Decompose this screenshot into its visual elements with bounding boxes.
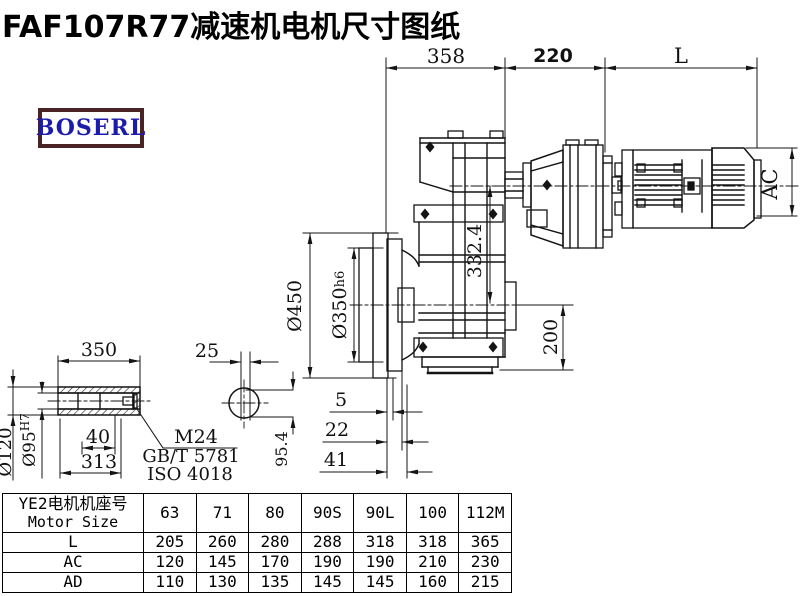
dim-120-label: Ø120: [0, 427, 16, 476]
cell: 170: [249, 553, 302, 573]
row-label: AD: [3, 573, 144, 593]
cell: 190: [354, 553, 407, 573]
dimension-arrow: [352, 248, 357, 259]
drawing-shape: [490, 131, 503, 138]
cell: 230: [459, 553, 512, 573]
standard-iso-label: ISO 4018: [147, 464, 233, 485]
table-header-motor-size: YE2电机机座号Motor Size: [3, 494, 144, 533]
dimension-arrow: [488, 292, 493, 303]
drawing-shape: [585, 140, 598, 145]
dimension-arrow: [790, 148, 795, 159]
dim-L-label: L: [674, 44, 688, 68]
dimension-arrow: [11, 415, 16, 426]
row-label: AC: [3, 553, 144, 573]
column-header: 80: [249, 494, 302, 533]
cell: 280: [249, 533, 302, 553]
dim-332-label: 332.4: [464, 224, 486, 278]
drawing-shape: [505, 172, 523, 198]
dimension-arrow: [393, 410, 404, 415]
column-header: 71: [196, 494, 249, 533]
drawing-shape: [58, 387, 140, 393]
dimension-arrow: [561, 359, 566, 370]
bolt-diamond-icon: [543, 180, 552, 191]
bolt-diamond-icon: [421, 209, 430, 220]
dim-40-label: 40: [86, 426, 110, 448]
dim-350h6-label: Ø350h6: [329, 271, 351, 340]
cell: 205: [144, 533, 197, 553]
dimension-arrow: [230, 360, 241, 365]
bolt-diamond-icon: [419, 342, 428, 353]
drawing-shape: [527, 210, 547, 227]
drawing-contour: [402, 250, 419, 266]
cell: 210: [406, 553, 459, 573]
drawing-line: [420, 182, 453, 192]
drawing-shape: [615, 163, 622, 176]
dim-358-label: 358: [427, 44, 465, 68]
drawing-shape: [615, 202, 622, 215]
cell: 110: [144, 573, 197, 593]
drawing-shape: [505, 282, 516, 330]
cell: 365: [459, 533, 512, 553]
column-header: 100: [406, 494, 459, 533]
dim-954-label: 95.4: [272, 431, 291, 467]
dimension-arrow: [746, 66, 757, 71]
drawing-shape: [373, 233, 388, 378]
dimension-arrow: [407, 470, 418, 475]
dimension-arrow: [129, 359, 140, 364]
dim-313-label: 313: [81, 451, 117, 473]
drawing-shape: [622, 150, 633, 228]
dim-41-label: 41: [324, 449, 348, 471]
dimension-arrow: [308, 233, 313, 244]
drawing-shape: [603, 156, 612, 237]
column-header: 90L: [354, 494, 407, 533]
drawing-line: [137, 409, 163, 448]
cell: 318: [406, 533, 459, 553]
cell: 260: [196, 533, 249, 553]
bolt-diamond-icon: [489, 342, 498, 353]
cell: 145: [354, 573, 407, 593]
row-label: L: [3, 533, 144, 553]
dimension-arrow: [505, 66, 516, 71]
drawing-shape: [566, 140, 579, 145]
drawing-shape: [523, 163, 531, 207]
dim-5-label: 5: [335, 389, 347, 411]
dim-22-label: 22: [325, 419, 349, 441]
dim-200-label: 200: [540, 319, 562, 355]
table-row: AC 120 145 170 190 190 210 230: [3, 553, 512, 573]
dimension-arrow: [561, 305, 566, 316]
dim-AC-label: AC: [758, 168, 782, 200]
cell: 130: [196, 573, 249, 593]
drawing-line: [531, 162, 563, 171]
dimension-arrow: [250, 360, 261, 365]
column-header: 112M: [459, 494, 512, 533]
dim-350-label: 350: [81, 339, 117, 361]
table-row: AD 110 130 135 145 145 160 215: [3, 573, 512, 593]
dimension-arrow: [58, 359, 69, 364]
drawing-contour: [712, 148, 754, 228]
dimension-arrow: [494, 66, 505, 71]
dim-450-label: Ø450: [284, 280, 306, 332]
dimension-arrow: [291, 379, 296, 390]
dimension-arrow: [376, 410, 387, 415]
cell: 135: [249, 573, 302, 593]
dimension-arrow: [376, 440, 387, 445]
dimension-arrow: [790, 205, 795, 216]
cell: 215: [459, 573, 512, 593]
thread-M24-label: M24: [174, 426, 218, 448]
dimension-arrow: [594, 66, 605, 71]
cell: 318: [354, 533, 407, 553]
cell: 190: [301, 553, 354, 573]
column-header: 90S: [301, 494, 354, 533]
drawing-sheet: FAF107R77减速机电机尺寸图纸 BOSERL 358 220 L AC 3…: [0, 0, 800, 596]
cell: 145: [301, 573, 354, 593]
drawing-shape: [58, 409, 140, 415]
cell: 120: [144, 553, 197, 573]
motor-size-table: YE2电机机座号Motor Size 63 71 80 90S 90L 100 …: [2, 493, 512, 593]
drawing-dimension-labels: 358 220 L AC 332.4 Ø450 Ø350h6 200 350 2…: [0, 44, 782, 485]
dimension-arrow: [376, 470, 387, 475]
column-header: 63: [144, 494, 197, 533]
dim-220-label: 220: [533, 45, 573, 67]
drawing-shape: [563, 145, 603, 248]
cell: 288: [301, 533, 354, 553]
drawing-contour: [531, 150, 563, 246]
table-row: L 205 260 280 288 318 318 365: [3, 533, 512, 553]
dimension-arrow: [11, 376, 16, 387]
dim-25-label: 25: [195, 340, 219, 362]
dim-95H7-label: Ø95H7: [18, 413, 40, 467]
dimension-arrow: [308, 367, 313, 378]
dimension-arrow: [291, 417, 296, 428]
drawing-shape: [448, 131, 463, 138]
dimension-arrow: [60, 471, 71, 476]
cell: 145: [196, 553, 249, 573]
drawing-geometry: [8, 58, 798, 480]
dimension-arrow: [352, 351, 357, 362]
dimension-arrow: [605, 66, 616, 71]
dimension-arrow: [386, 66, 397, 71]
cell: 160: [406, 573, 459, 593]
